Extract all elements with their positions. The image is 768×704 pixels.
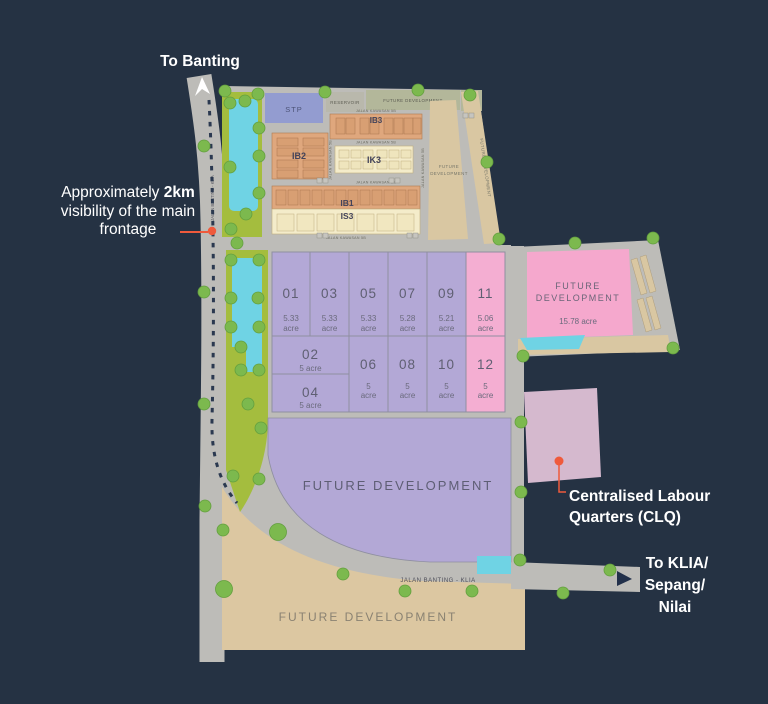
- clq-annotation-l1: Centralised Labour: [569, 488, 710, 505]
- plot-12: [466, 336, 505, 412]
- road-kawasan-label-4: JALAN KAWASAN 5B: [326, 236, 366, 240]
- clq-block: [524, 388, 601, 483]
- future-development-pink-l1: FUTURE: [555, 281, 601, 291]
- plot-05-a2: acre: [361, 324, 377, 333]
- plot-03-num: 03: [321, 286, 338, 301]
- plot-08-a2: acre: [400, 391, 416, 400]
- to-klia-l3: Nilai: [659, 599, 692, 616]
- road-kawasan-label-6: JALAN KAWASAN 5B: [421, 148, 425, 188]
- plot-09-num: 09: [438, 286, 455, 301]
- site-master-plan: STP RESERVOIR FUTURE DEVELOPMENT PPU IB3…: [0, 0, 768, 704]
- future-development-main-label: FUTURE DEVELOPMENT: [303, 478, 494, 493]
- road-kawasan-label-1: JALAN KAWASAN 5B: [356, 109, 396, 113]
- plot-06: [349, 336, 388, 412]
- plot-02-num: 02: [302, 347, 319, 362]
- stp-label: STP: [285, 105, 303, 114]
- visibility-annotation-l3: frontage: [100, 221, 157, 238]
- road-kawasan-label-5: JALAN KAWASAN 5B: [329, 140, 333, 180]
- visibility-pointer-dot: [208, 227, 216, 235]
- plot-09-a1: 5.21: [439, 314, 455, 323]
- plot-10-a2: acre: [439, 391, 455, 400]
- plot-10: [427, 336, 466, 412]
- plot-04-num: 04: [302, 385, 319, 400]
- plot-08-a1: 5: [405, 382, 410, 391]
- road-banting-klia-label: JALAN BANTING - KLIA: [400, 578, 475, 584]
- plot-10-num: 10: [438, 357, 455, 372]
- plot-10-a1: 5: [444, 382, 449, 391]
- plot-11-num: 11: [477, 286, 493, 301]
- plot-03-a2: acre: [322, 324, 338, 333]
- block-ib3-label: IB3: [370, 116, 383, 125]
- plot-11-a2: acre: [478, 324, 494, 333]
- block-ik3-label: IK3: [367, 155, 381, 165]
- to-banting-label: To Banting: [160, 53, 240, 70]
- future-development-central-l1: FUTURE: [439, 164, 459, 169]
- visibility-bold: 2km: [164, 184, 195, 201]
- visibility-annotation-l2: visibility of the main: [61, 203, 195, 220]
- future-development-central-l2: DEVELOPMENT: [430, 171, 468, 176]
- plot-07-a1: 5.28: [400, 314, 416, 323]
- reservoir-label: RESERVOIR: [330, 100, 359, 105]
- clq-pointer-dot: [555, 457, 564, 466]
- plot-06-a2: acre: [361, 391, 377, 400]
- plot-07-a2: acre: [400, 324, 416, 333]
- visibility-pre: Approximately: [61, 184, 164, 201]
- plot-12-num: 12: [477, 357, 494, 372]
- plot-04-a1: 5 acre: [299, 401, 322, 410]
- future-development-pink-acreage: 15.78 acre: [559, 317, 597, 326]
- future-development-bottom-label: FUTURE DEVELOPMENT: [279, 610, 458, 624]
- plot-11-a1: 5.06: [478, 314, 494, 323]
- master-plan-svg: STP RESERVOIR FUTURE DEVELOPMENT PPU IB3…: [0, 0, 768, 704]
- plot-06-a1: 5: [366, 382, 371, 391]
- plot-12-a2: acre: [478, 391, 494, 400]
- plot-09-a2: acre: [439, 324, 455, 333]
- plot-05-a1: 5.33: [361, 314, 377, 323]
- future-development-pink-l2: DEVELOPMENT: [536, 293, 621, 303]
- plot-08-num: 08: [399, 357, 416, 372]
- plot-01-num: 01: [282, 286, 299, 301]
- pond-main-corner: [477, 556, 511, 574]
- plot-12-a1: 5: [483, 382, 488, 391]
- plot-05-num: 05: [360, 286, 377, 301]
- block-is3-label: IS3: [341, 211, 354, 221]
- to-klia-l1: To KLIA/: [646, 555, 709, 572]
- plot-01-a2: acre: [283, 324, 299, 333]
- plot-07-num: 07: [399, 286, 416, 301]
- clq-annotation-l2: Quarters (CLQ): [569, 509, 681, 526]
- plot-08: [388, 336, 427, 412]
- plot-03-a1: 5.33: [322, 314, 338, 323]
- to-klia-l2: Sepang/: [645, 577, 706, 594]
- block-ib2-label: IB2: [292, 151, 306, 161]
- road-jalan-banting-klia-left: [199, 76, 214, 662]
- plot-06-num: 06: [360, 357, 377, 372]
- plot-01-a1: 5.33: [283, 314, 299, 323]
- visibility-annotation-l1: Approximately 2km: [61, 184, 195, 201]
- road-kawasan-label-2: JALAN KAWASAN 5B: [356, 141, 396, 145]
- plot-02-a1: 5 acre: [299, 364, 322, 373]
- block-ib1-label: IB1: [340, 198, 354, 208]
